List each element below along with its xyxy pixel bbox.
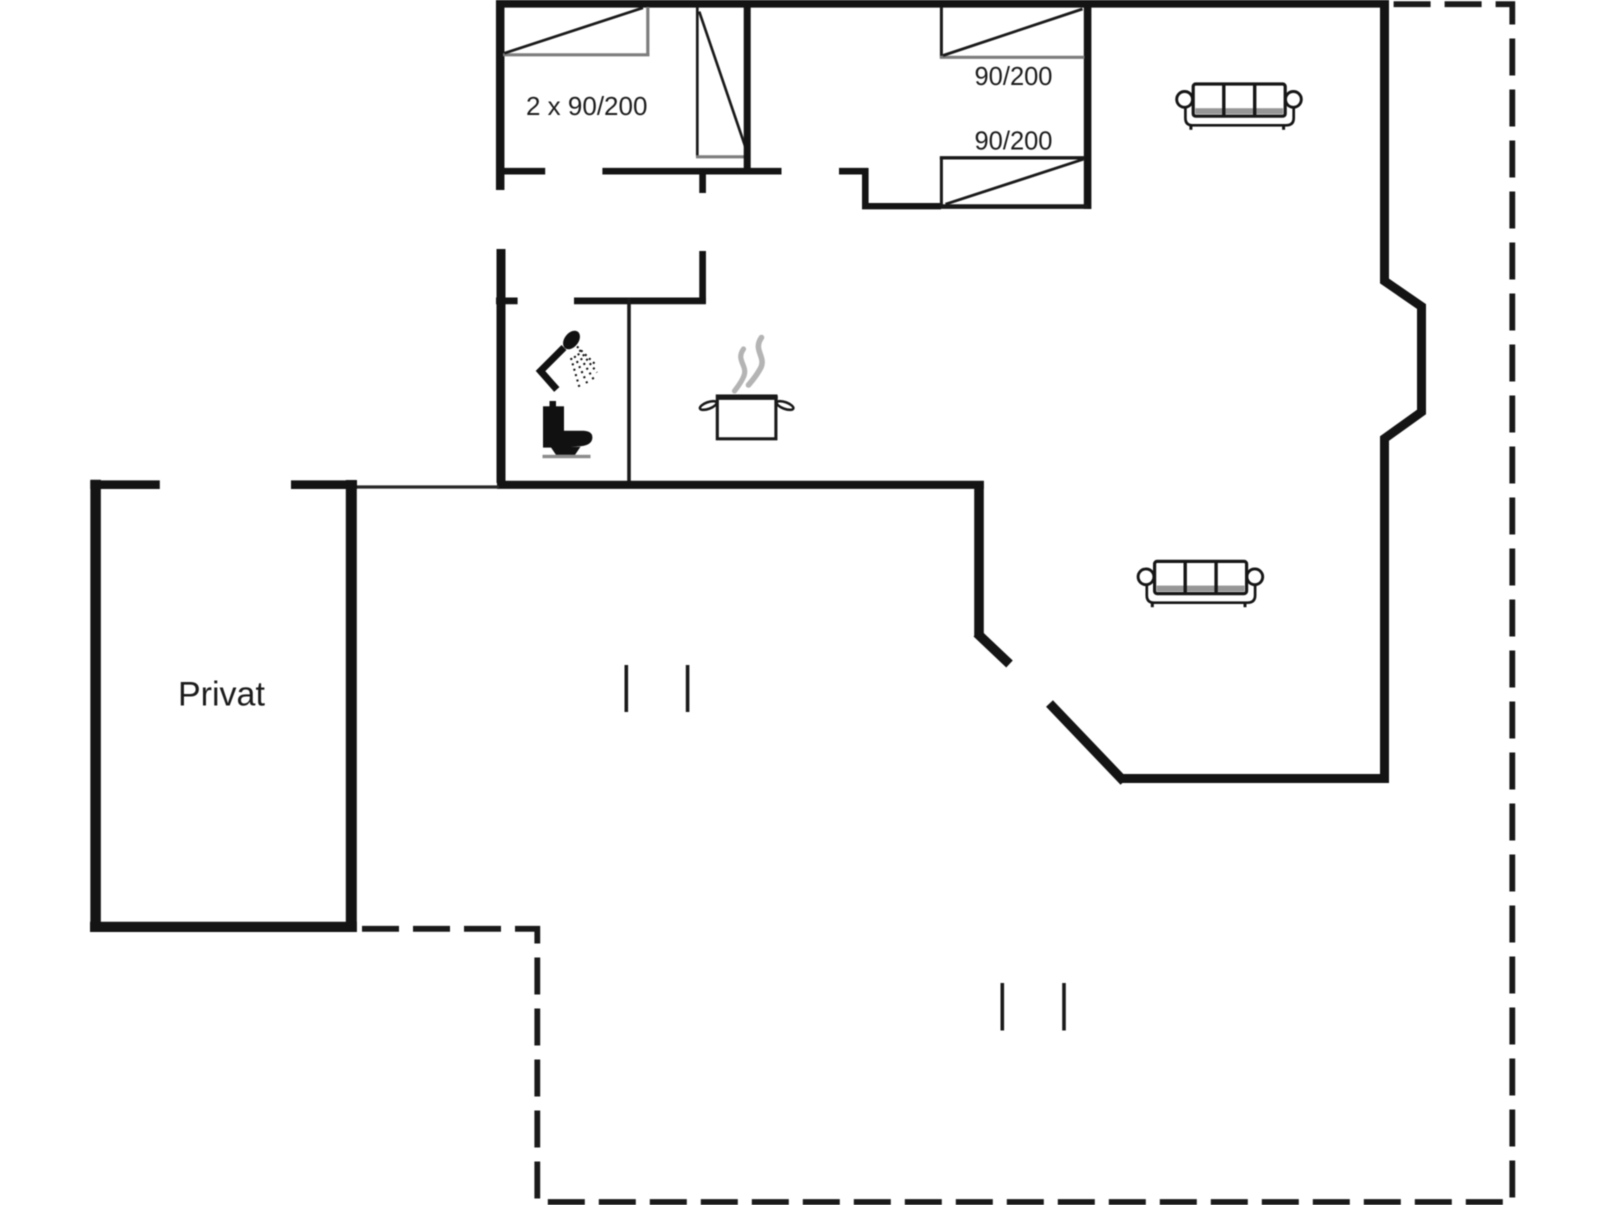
svg-text:90/200: 90/200 — [975, 128, 1053, 156]
svg-text:2 x 90/200: 2 x 90/200 — [526, 91, 647, 121]
svg-text:90/200: 90/200 — [975, 63, 1053, 91]
svg-text:Privat: Privat — [178, 676, 265, 714]
